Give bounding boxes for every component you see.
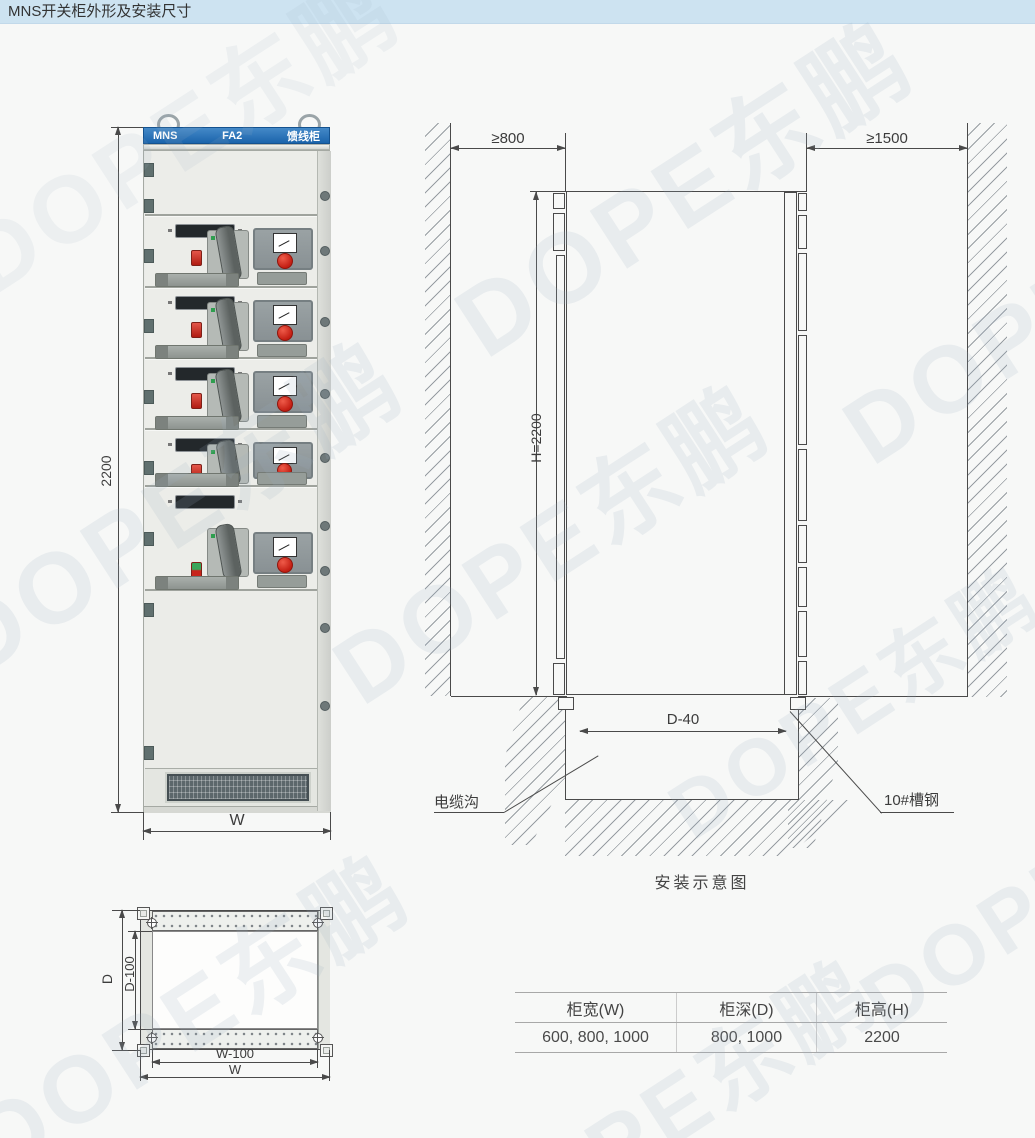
arrow-left-icon xyxy=(142,828,151,834)
cabinet-body xyxy=(143,150,330,812)
trench-wall-right xyxy=(798,697,799,800)
trench-width-dim-line xyxy=(580,731,786,732)
arrow-down-icon xyxy=(132,1021,138,1030)
mounting-hole-icon xyxy=(313,918,323,928)
spec-table-value-row: 600, 800, 1000 800, 1000 2200 xyxy=(515,1023,947,1052)
arrow-down-icon xyxy=(119,1042,125,1051)
front-width-dim-label: W xyxy=(200,812,274,830)
side-rear-cover-seg xyxy=(798,449,807,521)
ammeter xyxy=(273,233,297,253)
arrow-right-icon xyxy=(323,828,332,834)
topview-width-dim-line xyxy=(140,1077,330,1078)
dim-tick xyxy=(112,910,140,911)
floor-line-left xyxy=(451,696,567,697)
hinge xyxy=(144,163,154,177)
channel-steel-left xyxy=(558,697,574,710)
cabinet-nameplate-bar: MNS FA2 馈线柜 xyxy=(143,127,330,144)
topview-perforated-strip-top xyxy=(152,911,318,931)
red-button xyxy=(277,253,293,269)
hinge xyxy=(144,319,154,333)
drawer-unit xyxy=(145,216,317,288)
cabinet-type-label: 馈线柜 xyxy=(287,128,320,144)
meter-panel-handle xyxy=(257,472,307,485)
topview-inner-width-dim-label: W-100 xyxy=(185,1046,285,1061)
front-width-dim-line xyxy=(143,831,331,832)
screw-icon xyxy=(320,389,330,399)
dim-ext xyxy=(330,812,331,840)
blank-panel xyxy=(145,151,317,216)
spec-table-header-height: 柜高(H) xyxy=(816,993,947,1022)
vent-panel xyxy=(145,769,317,806)
meter-panel-handle xyxy=(257,272,307,285)
side-rear-cover-seg xyxy=(798,253,807,331)
side-rear-cover-seg xyxy=(798,661,807,695)
ground-hatch-bottom xyxy=(565,800,857,856)
cabinet-brand-label: MNS xyxy=(153,130,177,142)
screw-icon xyxy=(320,701,330,711)
dim-ext xyxy=(143,812,144,840)
spec-table-header-depth: 柜深(D) xyxy=(676,993,816,1022)
arrow-down-icon xyxy=(533,687,539,696)
arrow-right-icon xyxy=(778,728,787,734)
ammeter xyxy=(273,305,297,325)
indicator-lamp xyxy=(191,250,202,266)
dim-tick xyxy=(112,1050,140,1051)
right-clearance-dim-label: ≥1500 xyxy=(822,130,952,147)
arrow-up-icon xyxy=(119,909,125,918)
screw-icon xyxy=(320,246,330,256)
drawer-unit xyxy=(145,288,317,359)
indicator-lamp xyxy=(191,322,202,338)
page: MNS开关柜外形及安装尺寸 DOPE东鹏 DOPE东鹏 DOPE东鹏 DOPE东… xyxy=(0,0,1035,1138)
meter-panel xyxy=(253,532,313,574)
spec-table-value-depth: 800, 1000 xyxy=(676,1023,816,1052)
mounting-hole-icon xyxy=(147,1033,157,1043)
spec-table: 柜宽(W) 柜深(D) 柜高(H) 600, 800, 1000 800, 10… xyxy=(515,992,947,1053)
channel-steel-label: 10#槽钢 xyxy=(884,789,956,810)
left-clearance-dim-line xyxy=(451,148,565,149)
left-clearance-dim-label: ≥800 xyxy=(452,130,564,147)
mounting-hole-icon xyxy=(313,1033,323,1043)
corner-post xyxy=(320,1044,333,1057)
arrow-right-icon xyxy=(310,1059,319,1065)
arrow-left-icon xyxy=(806,145,815,151)
dim-ext xyxy=(806,133,807,191)
topview-width-dim-label: W xyxy=(200,1062,270,1077)
side-front-panel-seg xyxy=(553,193,565,209)
screw-icon xyxy=(320,317,330,327)
right-clearance-dim-line xyxy=(807,148,967,149)
screw-icon xyxy=(320,566,330,576)
cabinet-front-view: MNS FA2 馈线柜 xyxy=(143,113,330,812)
floor-line-right xyxy=(798,696,967,697)
screw-icon xyxy=(320,191,330,201)
side-rear-cover-seg xyxy=(798,193,807,211)
trench-bottom xyxy=(565,799,799,800)
meter-panel-handle xyxy=(257,415,307,428)
leader-underline xyxy=(434,812,504,813)
cabinet-model-label: FA2 xyxy=(222,130,242,142)
trench-width-dim-label: D-40 xyxy=(633,711,733,728)
spec-table-header-row: 柜宽(W) 柜深(D) 柜高(H) xyxy=(515,993,947,1023)
ground-hatch-left xyxy=(505,697,567,845)
topview-depth-dim-label: D xyxy=(99,964,115,994)
arrow-left-icon xyxy=(579,728,588,734)
vent-grille xyxy=(167,774,309,801)
meter-panel xyxy=(253,228,313,270)
right-wall-hatch xyxy=(967,123,1007,697)
meter-panel xyxy=(253,371,313,413)
red-button xyxy=(277,557,293,573)
arrow-right-icon xyxy=(322,1074,331,1080)
meter-panel xyxy=(253,300,313,342)
page-header-bar: MNS开关柜外形及安装尺寸 xyxy=(0,0,1035,24)
ammeter xyxy=(273,537,297,557)
spec-table-header-width: 柜宽(W) xyxy=(515,993,676,1022)
arrow-up-icon xyxy=(533,191,539,200)
arrow-left-icon xyxy=(151,1059,160,1065)
dim-ext xyxy=(565,133,566,191)
right-wall-edge xyxy=(967,123,968,697)
drawer-unit xyxy=(145,359,317,430)
drawer-unit xyxy=(145,487,317,591)
topview-side-right xyxy=(318,911,330,1049)
drawer-handle xyxy=(155,473,239,487)
side-rear-cover-seg xyxy=(798,567,807,607)
installation-caption: 安装示意图 xyxy=(637,869,767,893)
screw-icon xyxy=(320,521,330,531)
arrow-left-icon xyxy=(139,1074,148,1080)
meter-panel-handle xyxy=(257,575,307,588)
arrow-up-icon xyxy=(132,930,138,939)
front-height-dim-line xyxy=(118,127,119,812)
drawer-handle xyxy=(155,273,239,287)
left-wall-edge xyxy=(450,123,451,696)
drawer-handle xyxy=(155,416,239,430)
indicator-lamp xyxy=(191,393,202,409)
mounting-hole-icon xyxy=(147,918,157,928)
spec-table-value-height: 2200 xyxy=(816,1023,947,1052)
front-height-dim-label: 2200 xyxy=(97,441,115,501)
left-wall-hatch xyxy=(425,123,450,696)
hinge xyxy=(144,461,154,475)
topview-inner-depth-dim-label: D-100 xyxy=(121,947,137,1001)
leader-underline xyxy=(880,812,954,813)
side-rear-column xyxy=(784,192,797,695)
cabinet-right-column xyxy=(317,151,331,811)
hinge xyxy=(144,603,154,617)
drawer-handle xyxy=(155,345,239,359)
drawer-handle xyxy=(155,576,239,590)
red-button xyxy=(277,325,293,341)
meter-panel-handle xyxy=(257,344,307,357)
arrow-right-icon xyxy=(959,145,968,151)
side-cabinet-outline xyxy=(566,191,797,695)
red-button xyxy=(277,396,293,412)
hinge xyxy=(144,532,154,546)
ammeter xyxy=(273,376,297,396)
dim-tick xyxy=(111,812,143,813)
hinge xyxy=(144,249,154,263)
hinge xyxy=(144,199,154,213)
side-height-dim-label: H=2200 xyxy=(528,403,544,473)
channel-steel-right xyxy=(790,697,806,710)
hinge xyxy=(144,746,154,760)
page-title: MNS开关柜外形及安装尺寸 xyxy=(8,0,191,23)
side-rear-cover-seg xyxy=(798,611,807,657)
side-rear-cover-seg xyxy=(798,215,807,249)
side-rear-cover-seg xyxy=(798,335,807,445)
side-front-panel-seg xyxy=(553,213,565,251)
side-front-panel-seg xyxy=(553,663,565,695)
corner-post xyxy=(320,907,333,920)
drawer-nameplate xyxy=(175,495,235,509)
screw-icon xyxy=(320,453,330,463)
side-rear-cover-seg xyxy=(798,525,807,563)
blank-door xyxy=(145,591,317,769)
trench-wall-left xyxy=(565,697,566,800)
screw-icon xyxy=(320,623,330,633)
dim-tick xyxy=(111,127,143,128)
drawer-unit xyxy=(145,430,317,487)
spec-table-value-width: 600, 800, 1000 xyxy=(515,1023,676,1052)
cable-trench-label: 电缆沟 xyxy=(434,791,500,812)
ammeter xyxy=(273,447,297,464)
hinge xyxy=(144,390,154,404)
topview-inner-area xyxy=(152,931,318,1029)
side-front-door-edge xyxy=(556,255,565,659)
